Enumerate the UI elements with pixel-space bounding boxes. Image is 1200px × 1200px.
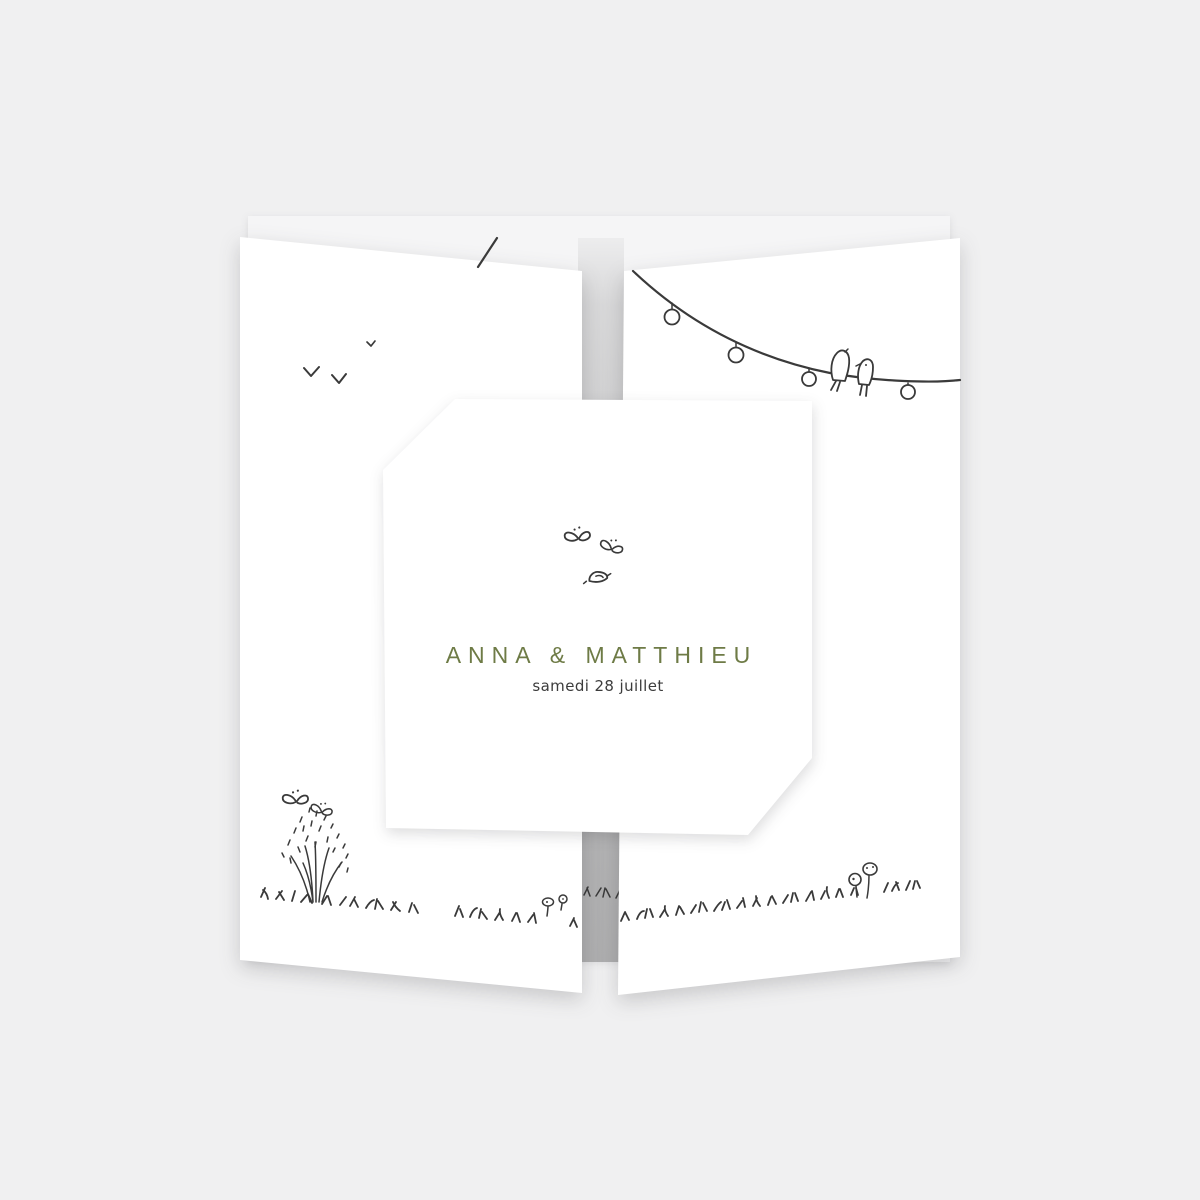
gatefold-invitation-product-photo: ANNA & MATTHIEU samedi 28 juillet bbox=[0, 0, 1200, 1200]
page-background: { "card": { "couple_names": "ANNA & MATT… bbox=[0, 0, 1200, 1200]
center-announcement-card bbox=[383, 399, 812, 835]
invitation-scene bbox=[0, 0, 1200, 1200]
